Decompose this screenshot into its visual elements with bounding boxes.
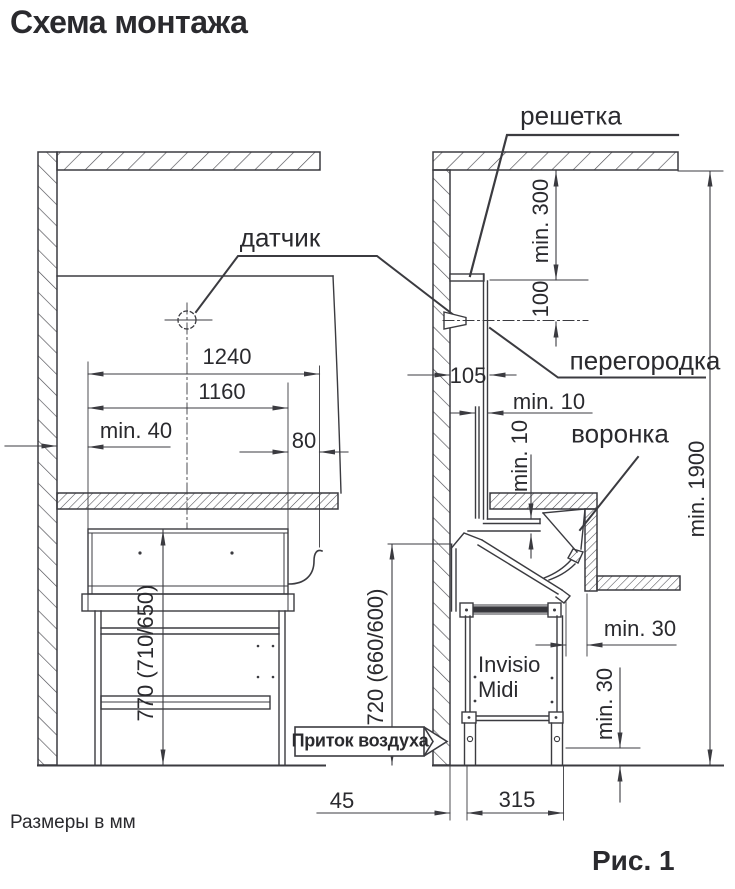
dim-label-min30-v: min. 30 <box>592 668 618 740</box>
dim-label-min1900: min. 1900 <box>684 441 710 538</box>
dim-label-80: 80 <box>292 428 316 454</box>
dim-label-1240: 1240 <box>203 344 252 370</box>
funnel-shape <box>543 509 585 580</box>
installation-diagram: Схема монтажа датчик решетка перегородка… <box>0 0 735 889</box>
dim-label-720: 720 (660/600) <box>363 589 389 726</box>
sensor-label: датчик <box>240 223 320 254</box>
dim-label-min10-h: min. 10 <box>513 389 585 415</box>
dim-label-min300: min. 300 <box>528 179 554 263</box>
dim-label-315: 315 <box>499 787 536 813</box>
side-view <box>433 152 723 766</box>
figure-caption: Рис. 1 <box>592 845 675 877</box>
break-line <box>333 276 341 493</box>
grille-label: решетка <box>520 101 622 132</box>
dim-label-45: 45 <box>330 788 354 814</box>
countertop-right <box>490 493 597 509</box>
wall-hatch-left <box>38 152 57 765</box>
wall-hatch-right <box>433 170 450 765</box>
dim-label-105: 105 <box>450 363 487 389</box>
ceiling-hatch-left <box>57 152 320 170</box>
counter-lower <box>597 576 680 590</box>
partition-label: перегородка <box>570 346 721 377</box>
dim-label-min10-v: min. 10 <box>507 420 533 492</box>
units-note: Размеры в мм <box>10 812 136 834</box>
grille-bracket <box>450 274 484 281</box>
dim-label-min40: min. 40 <box>100 418 172 444</box>
unit-legs <box>465 723 563 764</box>
unit-name-line2: Midi <box>478 677 518 702</box>
funnel-label: воронка <box>571 419 669 450</box>
dim-label-770: 770 (710/650) <box>133 585 159 722</box>
dim-label-min30-h: min. 30 <box>604 616 676 642</box>
ceiling-hatch-right <box>433 152 678 170</box>
sensor-leader <box>196 256 455 316</box>
unit-name-line1: Invisio <box>478 652 540 677</box>
dim-label-1160: 1160 <box>198 379 245 405</box>
cabinet-frame <box>95 611 285 765</box>
power-cable <box>289 550 322 584</box>
page-title: Схема монтажа <box>10 4 247 41</box>
dim-label-100: 100 <box>528 281 554 318</box>
countertop-left <box>57 493 338 509</box>
air-inflow-label: Приток воздуха <box>292 731 429 752</box>
hob-plenum <box>82 529 294 611</box>
